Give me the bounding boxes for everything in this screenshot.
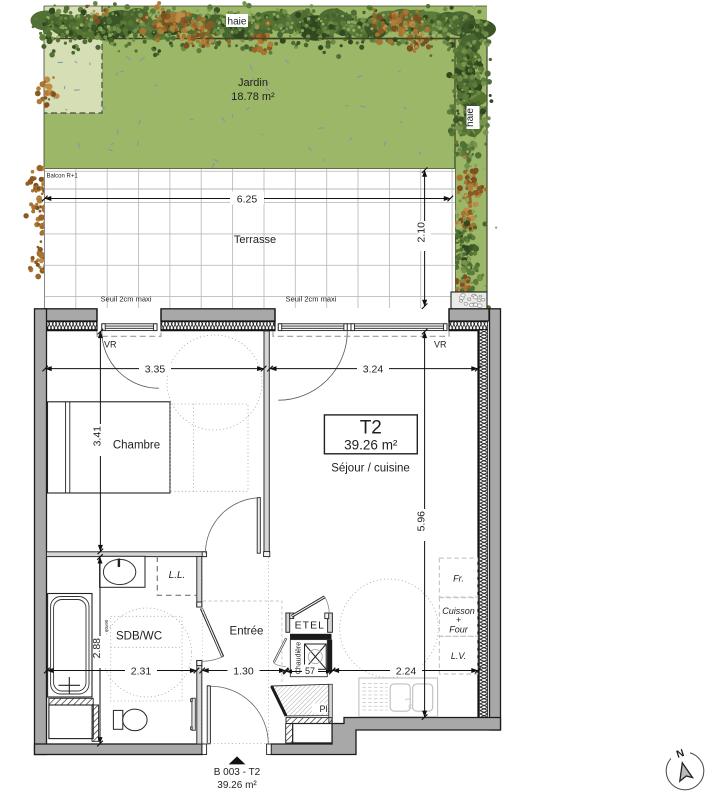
- svg-text:Fr.: Fr.: [453, 574, 464, 584]
- svg-text:2.10: 2.10: [416, 222, 428, 243]
- svg-text:57: 57: [305, 666, 315, 676]
- svg-text:+: +: [456, 615, 461, 625]
- svg-text:L.L.: L.L.: [169, 570, 186, 581]
- svg-text:18.78 m²: 18.78 m²: [231, 91, 275, 103]
- svg-text:3.35: 3.35: [145, 364, 166, 376]
- svg-text:haie: haie: [228, 17, 247, 28]
- svg-text:60x90: 60x90: [104, 619, 109, 632]
- svg-text:39.26 m²: 39.26 m²: [217, 780, 257, 791]
- svg-text:T2: T2: [360, 418, 382, 439]
- svg-text:39.26 m²: 39.26 m²: [344, 438, 398, 453]
- svg-text:SDB/WC: SDB/WC: [116, 631, 162, 643]
- svg-text:Terrasse: Terrasse: [234, 234, 276, 246]
- svg-text:Chambre: Chambre: [113, 440, 160, 452]
- svg-text:3.24: 3.24: [363, 364, 384, 376]
- svg-text:3.41: 3.41: [91, 426, 103, 447]
- svg-text:2.31: 2.31: [131, 665, 152, 677]
- svg-text:Chaudière: Chaudière: [296, 642, 303, 674]
- svg-text:1.30: 1.30: [233, 665, 254, 677]
- svg-text:VR: VR: [104, 340, 117, 350]
- svg-text:Seuil 2cm maxi: Seuil 2cm maxi: [286, 295, 337, 304]
- svg-text:Balcon R+1: Balcon R+1: [47, 174, 79, 180]
- svg-text:Séjour / cuisine: Séjour / cuisine: [331, 463, 410, 475]
- svg-text:2.88: 2.88: [91, 638, 103, 659]
- svg-text:B 003 - T2: B 003 - T2: [214, 767, 261, 778]
- svg-text:ETEL: ETEL: [295, 620, 325, 632]
- svg-text:Pl.: Pl.: [320, 704, 331, 714]
- svg-text:VR: VR: [434, 340, 447, 350]
- svg-text:Jardin: Jardin: [238, 77, 268, 89]
- svg-text:haie: haie: [465, 108, 476, 127]
- svg-text:Entrée: Entrée: [230, 626, 264, 638]
- svg-text:Seuil 2cm maxi: Seuil 2cm maxi: [101, 295, 152, 304]
- svg-text:6.25: 6.25: [237, 194, 258, 206]
- svg-text:2.24: 2.24: [396, 665, 417, 677]
- svg-text:Four: Four: [449, 625, 469, 635]
- svg-text:5.96: 5.96: [416, 511, 428, 532]
- svg-text:L.V.: L.V.: [451, 651, 466, 661]
